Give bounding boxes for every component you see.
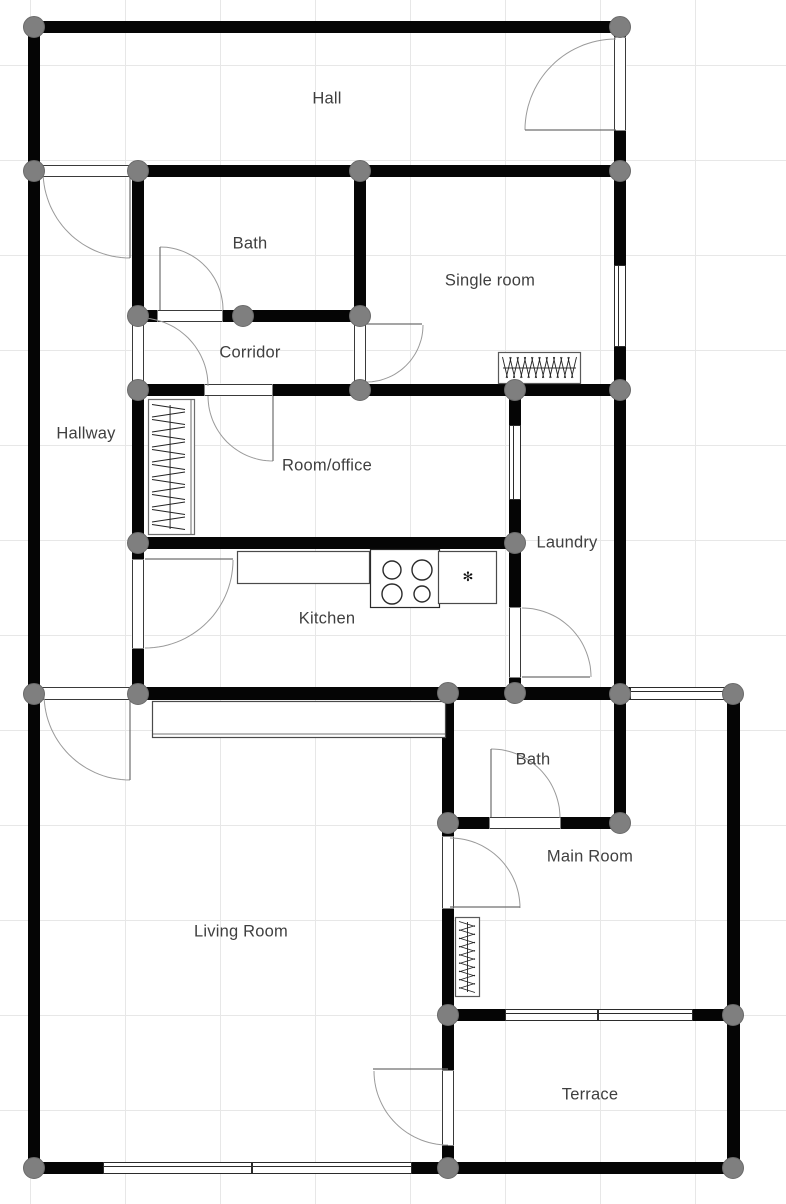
door-opening-gap xyxy=(158,310,223,323)
wall-node-handle[interactable] xyxy=(128,306,149,327)
window-frame xyxy=(253,1163,412,1174)
window[interactable] xyxy=(510,425,521,500)
wall-node-handle[interactable] xyxy=(505,380,526,401)
wall-node-handle[interactable] xyxy=(128,380,149,401)
wall-node-handle[interactable] xyxy=(438,813,459,834)
door-swing-arc xyxy=(491,749,560,818)
wall-node-handle[interactable] xyxy=(350,306,371,327)
door[interactable] xyxy=(43,171,130,258)
wall-node-handle[interactable] xyxy=(610,161,631,182)
window[interactable] xyxy=(598,1010,693,1021)
window-frame xyxy=(631,688,725,700)
wall-node-handle[interactable] xyxy=(128,684,149,705)
door-opening xyxy=(205,384,273,397)
wall-node-handle[interactable] xyxy=(350,161,371,182)
door-opening xyxy=(158,310,223,323)
door-opening xyxy=(614,38,627,131)
stove-burner-icon xyxy=(382,584,402,604)
door[interactable] xyxy=(145,559,233,648)
faucet-icon: ✻ xyxy=(463,569,474,584)
door-opening-gap xyxy=(490,817,561,830)
door[interactable] xyxy=(208,396,273,461)
door-swing-arc xyxy=(44,694,130,780)
door-opening xyxy=(132,322,145,385)
wall-node-handle[interactable] xyxy=(723,1158,744,1179)
door-swing-arc xyxy=(145,560,233,648)
door-swing-arc xyxy=(43,171,130,258)
radiator[interactable] xyxy=(456,918,480,997)
wall-node-handle[interactable] xyxy=(438,1005,459,1026)
door-opening xyxy=(509,608,522,678)
door-opening-gap xyxy=(354,323,367,384)
stove-burner-icon xyxy=(412,560,432,580)
window-frame xyxy=(104,1163,252,1174)
wall-node-handle[interactable] xyxy=(128,161,149,182)
door-swing-arc xyxy=(140,318,208,386)
door-opening-gap xyxy=(442,837,455,909)
window[interactable] xyxy=(252,1163,412,1174)
door[interactable] xyxy=(525,39,616,130)
window-frame xyxy=(506,1010,598,1021)
wall-node-handle[interactable] xyxy=(610,17,631,38)
door-swing-arc xyxy=(160,247,223,310)
radiator[interactable] xyxy=(499,353,581,384)
door-opening xyxy=(490,817,561,830)
door-swing-arc xyxy=(525,39,616,130)
window[interactable] xyxy=(103,1163,252,1174)
door[interactable] xyxy=(140,318,208,386)
door-swing-arc xyxy=(366,325,423,382)
wall-node-handle[interactable] xyxy=(438,683,459,704)
wall-node-handle[interactable] xyxy=(610,684,631,705)
door[interactable] xyxy=(491,749,560,818)
window[interactable] xyxy=(505,1010,598,1021)
wall-node-handle[interactable] xyxy=(24,17,45,38)
wall-node-handle[interactable] xyxy=(24,161,45,182)
wall[interactable] xyxy=(132,537,521,549)
door-opening xyxy=(132,560,145,649)
sink[interactable]: ✻ xyxy=(439,552,497,604)
stove-burner-icon xyxy=(414,586,430,602)
door-opening-gap xyxy=(442,1071,455,1146)
wall-node-handle[interactable] xyxy=(610,813,631,834)
wall-node-handle[interactable] xyxy=(723,1005,744,1026)
door-opening-gap xyxy=(132,322,145,385)
door-swing-arc xyxy=(450,838,520,908)
wall-node-handle[interactable] xyxy=(438,1158,459,1179)
door[interactable] xyxy=(366,324,423,382)
door[interactable] xyxy=(450,838,520,908)
door[interactable] xyxy=(373,1069,448,1145)
wall-node-handle[interactable] xyxy=(24,684,45,705)
wall[interactable] xyxy=(28,21,626,33)
door[interactable] xyxy=(160,247,223,310)
floor-plan-svg: ✻ xyxy=(0,0,786,1204)
wall-node-handle[interactable] xyxy=(723,684,744,705)
door-swing-arc xyxy=(208,396,273,461)
door-opening-gap xyxy=(132,560,145,649)
door-opening xyxy=(442,837,455,909)
door-swing-arc xyxy=(522,608,591,677)
door-opening-gap xyxy=(614,38,627,131)
wall[interactable] xyxy=(28,21,40,1174)
stove-burner-icon xyxy=(383,561,401,579)
door-swing-arc xyxy=(374,1071,448,1145)
wall-node-handle[interactable] xyxy=(610,380,631,401)
window-frame xyxy=(510,426,521,500)
wall-node-handle[interactable] xyxy=(128,533,149,554)
door-opening-gap xyxy=(40,687,131,701)
counter[interactable] xyxy=(238,552,370,584)
wall-node-handle[interactable] xyxy=(505,683,526,704)
window[interactable] xyxy=(615,265,626,347)
door-opening xyxy=(40,687,131,701)
wall[interactable] xyxy=(727,687,740,1174)
window-frame xyxy=(615,266,626,347)
sideboard[interactable] xyxy=(153,702,446,738)
door-opening xyxy=(40,165,131,178)
door-opening xyxy=(354,323,367,384)
door-opening-gap xyxy=(205,384,273,397)
wardrobe[interactable] xyxy=(149,400,195,535)
window-frame xyxy=(599,1010,693,1021)
door[interactable] xyxy=(44,694,130,780)
door[interactable] xyxy=(522,608,591,677)
door-opening xyxy=(442,1071,455,1146)
wall-node-handle[interactable] xyxy=(350,380,371,401)
window[interactable] xyxy=(630,688,725,700)
counter-outline xyxy=(238,552,370,584)
wall-node-handle[interactable] xyxy=(24,1158,45,1179)
door-opening-gap xyxy=(40,165,131,178)
floor-plan-canvas[interactable]: ✻ HallBathSingle roomCorridorHallwayRoom… xyxy=(0,0,786,1204)
sideboard-outline xyxy=(153,702,446,738)
wall-node-handle[interactable] xyxy=(505,533,526,554)
stove[interactable] xyxy=(371,550,440,608)
door-opening-gap xyxy=(509,608,522,678)
wall-node-handle[interactable] xyxy=(233,306,254,327)
wall[interactable] xyxy=(614,21,626,829)
